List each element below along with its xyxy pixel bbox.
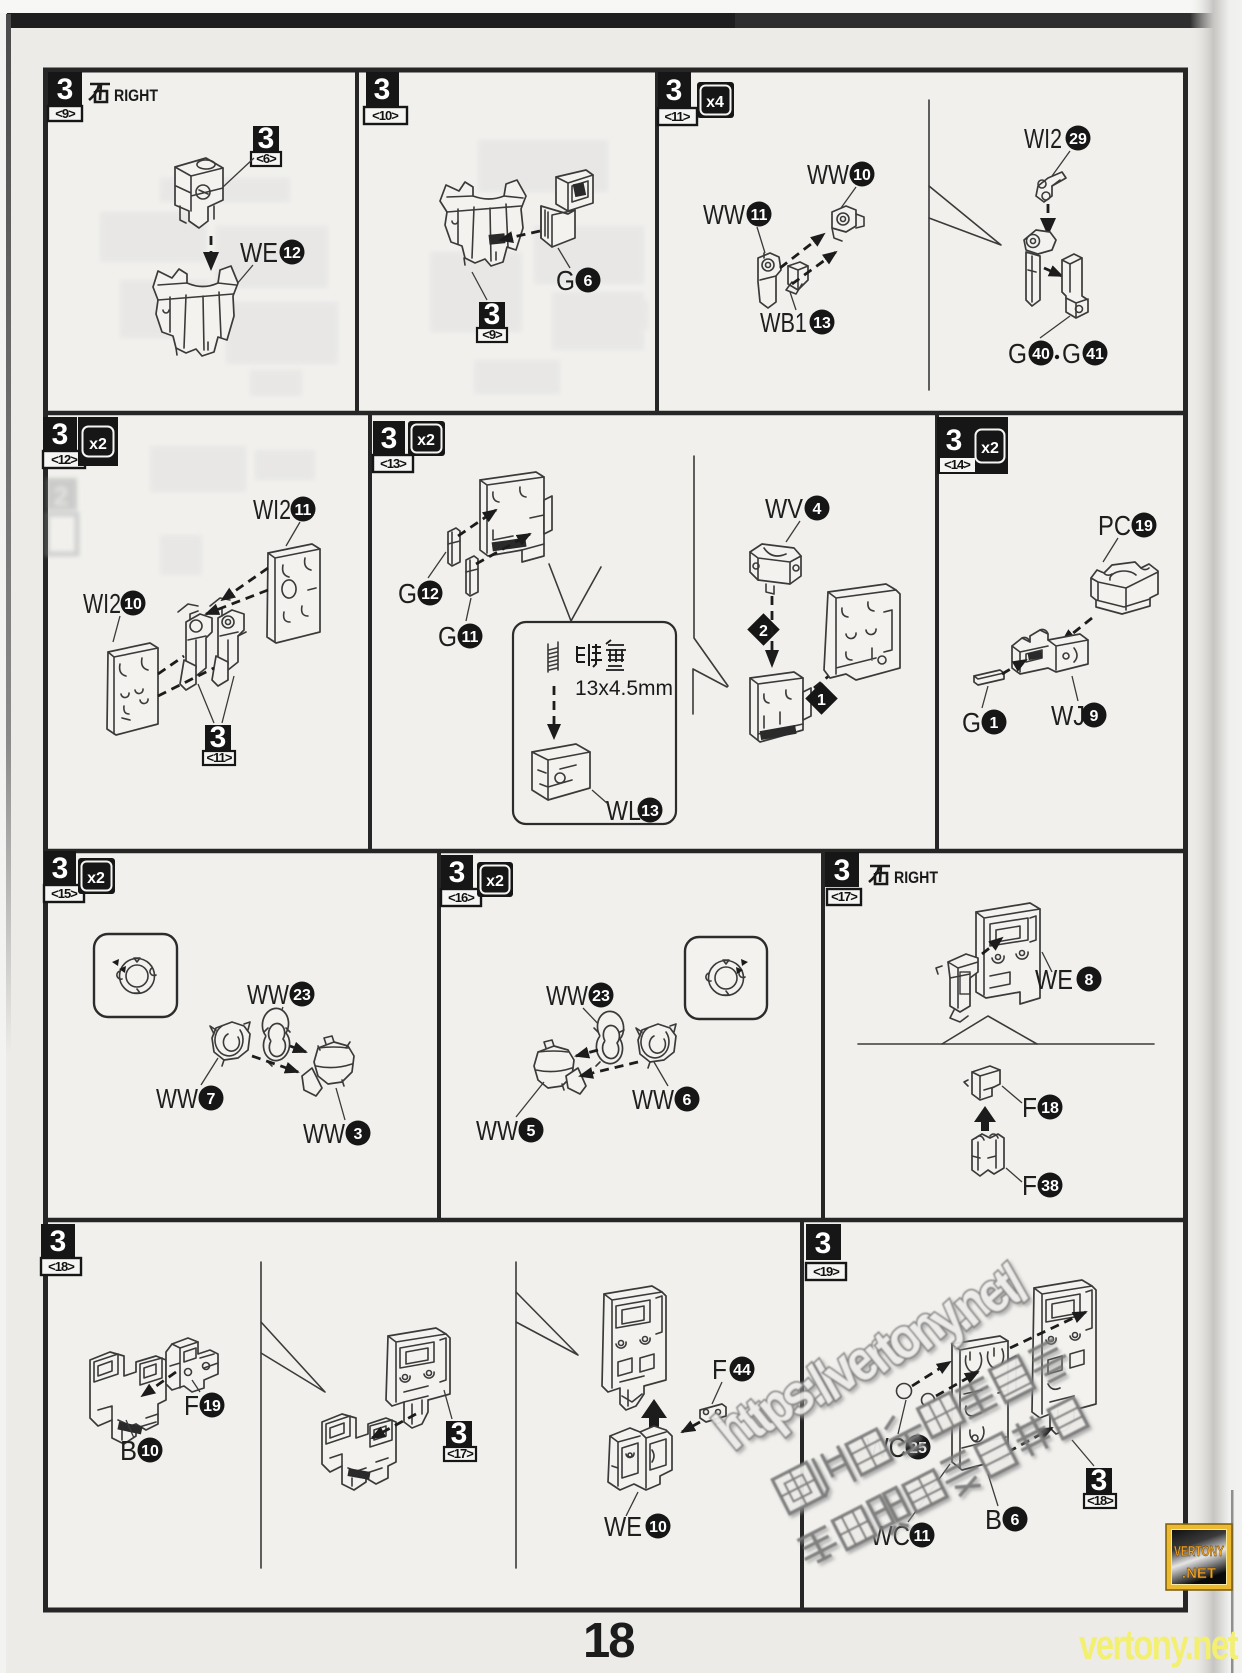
svg-text:3: 3 [57, 73, 74, 106]
svg-text:<14>: <14> [944, 457, 971, 472]
svg-text:12: 12 [283, 245, 301, 262]
svg-text:WJ: WJ [1051, 700, 1085, 731]
svg-text:3: 3 [52, 852, 69, 885]
svg-text:RIGHT: RIGHT [894, 868, 939, 887]
svg-text:19: 19 [203, 1398, 221, 1415]
svg-text:<6>: <6> [256, 151, 277, 166]
svg-text:3: 3 [354, 1126, 363, 1143]
svg-text:3: 3 [815, 1227, 832, 1260]
svg-text:WW: WW [632, 1084, 674, 1115]
svg-text:<9>: <9> [482, 327, 503, 342]
svg-text:10: 10 [141, 1443, 159, 1460]
svg-text:WI2: WI2 [1024, 123, 1062, 154]
svg-text:RIGHT: RIGHT [114, 86, 159, 105]
svg-text:6: 6 [683, 1092, 692, 1109]
svg-text:WW: WW [156, 1083, 198, 1114]
svg-text:x2: x2 [417, 432, 435, 449]
svg-text:13x4.5mm: 13x4.5mm [575, 677, 673, 700]
svg-text:38: 38 [1041, 1178, 1059, 1195]
svg-text:x2: x2 [89, 436, 107, 453]
svg-text:VERTONY: VERTONY [1174, 1544, 1224, 1560]
svg-text:WW: WW [703, 199, 745, 230]
svg-text:WW: WW [303, 1118, 345, 1149]
svg-text:40: 40 [1032, 346, 1050, 363]
svg-text:WB1: WB1 [760, 307, 807, 338]
svg-text:1: 1 [817, 692, 826, 709]
svg-text:12: 12 [421, 586, 439, 603]
svg-text:G: G [1062, 338, 1081, 369]
svg-text:29: 29 [1069, 131, 1087, 148]
svg-text:G: G [556, 265, 575, 296]
svg-text:WL: WL [606, 795, 641, 826]
svg-text:23: 23 [293, 987, 311, 1004]
svg-text:3: 3 [449, 856, 466, 889]
svg-text:13: 13 [813, 315, 831, 332]
svg-text:WI2: WI2 [253, 494, 291, 525]
svg-text:2: 2 [759, 623, 768, 640]
svg-text:8: 8 [1085, 972, 1094, 989]
svg-text:<11>: <11> [207, 750, 233, 765]
svg-text:F: F [184, 1390, 199, 1421]
svg-text:18: 18 [1041, 1100, 1059, 1117]
svg-text:.NET: .NET [1182, 1565, 1216, 1582]
svg-text:10: 10 [853, 167, 871, 184]
svg-text:<11>: <11> [665, 109, 691, 124]
svg-text:3: 3 [52, 418, 69, 451]
svg-text:x2: x2 [87, 870, 105, 887]
svg-text:WW: WW [247, 979, 289, 1010]
svg-text:23: 23 [592, 988, 610, 1005]
svg-text:<12>: <12> [51, 452, 78, 467]
svg-text:<15>: <15> [51, 886, 78, 901]
svg-text:9: 9 [1090, 708, 1099, 725]
svg-text:19: 19 [1135, 518, 1153, 535]
svg-text:<9>: <9> [55, 106, 76, 121]
svg-text:vertony.net: vertony.net [1079, 1621, 1239, 1668]
svg-text:3: 3 [666, 74, 683, 107]
svg-text:<18>: <18> [48, 1259, 75, 1274]
svg-text:6: 6 [584, 273, 593, 290]
svg-text:6: 6 [1011, 1512, 1020, 1529]
svg-text:44: 44 [733, 1362, 751, 1379]
svg-text:5: 5 [527, 1123, 536, 1140]
svg-text:1: 1 [990, 715, 999, 732]
svg-text:G: G [962, 707, 981, 738]
svg-text:13: 13 [641, 803, 659, 820]
svg-text:<16>: <16> [448, 890, 475, 905]
svg-text:<19>: <19> [813, 1264, 840, 1279]
svg-text:<17>: <17> [831, 889, 858, 904]
svg-text:<17>: <17> [447, 1446, 474, 1461]
svg-text:<10>: <10> [372, 108, 399, 123]
svg-text:F: F [1022, 1170, 1037, 1201]
svg-text:18: 18 [583, 1614, 634, 1668]
svg-text:WE: WE [1035, 964, 1073, 995]
svg-text:WV: WV [765, 493, 803, 524]
svg-text:G: G [398, 578, 417, 609]
svg-text:3: 3 [834, 854, 851, 887]
svg-text:G: G [1008, 338, 1027, 369]
svg-text:10: 10 [649, 1519, 667, 1536]
svg-text:WW: WW [476, 1115, 518, 1146]
svg-text:10: 10 [124, 596, 142, 613]
svg-text:F: F [1022, 1092, 1037, 1123]
svg-text:WE: WE [604, 1511, 642, 1542]
svg-text:3: 3 [50, 1225, 67, 1258]
svg-text:4: 4 [813, 501, 822, 518]
svg-text:3: 3 [381, 422, 398, 455]
svg-text:WI2: WI2 [83, 588, 121, 619]
svg-text:11: 11 [295, 502, 312, 519]
svg-text:3: 3 [946, 424, 963, 457]
svg-text:G: G [438, 621, 457, 652]
svg-text:WW: WW [546, 980, 588, 1011]
svg-text:x2: x2 [486, 873, 504, 890]
svg-text:11: 11 [914, 1528, 931, 1545]
svg-text:<18>: <18> [1087, 1493, 1114, 1508]
svg-text:x2: x2 [981, 440, 999, 457]
svg-text:PC: PC [1098, 510, 1131, 541]
svg-text:WE: WE [240, 237, 278, 268]
svg-text:3: 3 [374, 73, 391, 106]
svg-text:WW: WW [807, 159, 849, 190]
svg-text:11: 11 [751, 207, 768, 224]
svg-text:<13>: <13> [380, 456, 407, 471]
svg-text:41: 41 [1086, 346, 1104, 363]
svg-text:11: 11 [462, 629, 479, 646]
svg-text:7: 7 [207, 1091, 216, 1108]
svg-text:F: F [712, 1354, 727, 1385]
svg-text:2: 2 [54, 481, 68, 511]
svg-text:B: B [120, 1435, 137, 1466]
svg-text:x4: x4 [706, 94, 724, 111]
svg-text:B: B [985, 1504, 1002, 1535]
